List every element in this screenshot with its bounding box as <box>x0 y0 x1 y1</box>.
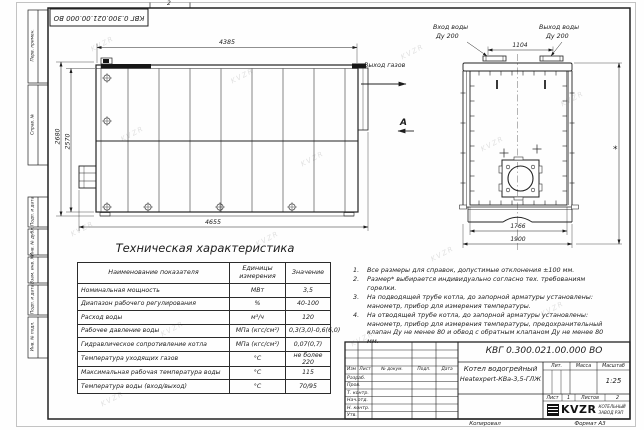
note-item: 2. Размер* выбирается индивидуально согл… <box>353 275 613 292</box>
tb-row-tkontr: Т. контр. <box>347 391 369 396</box>
spec-cell-unit: °С <box>230 380 286 394</box>
tb-header-list: Лист <box>358 368 372 373</box>
dim-2570: 2570 <box>66 113 73 169</box>
note-number: 4. <box>353 311 367 345</box>
spec-cell-name: Номинальная мощность <box>78 284 230 298</box>
tb-row-nkontr: Н. контр. <box>347 406 369 411</box>
spec-cell-unit: м³/ч <box>230 311 286 325</box>
kvzr-logo-caption: КОТЕЛЬНЫЙ ЗАВОД РЭП <box>598 404 625 415</box>
dim-4385: 4385 <box>182 40 272 47</box>
top-sheet-marker: 2 <box>167 1 171 8</box>
lit-label: Лит. <box>543 364 570 369</box>
format-label: Формат А3 <box>565 421 615 427</box>
note-item: 1. Все размеры для справок, допустимые о… <box>353 266 613 274</box>
spec-cell-unit: % <box>230 297 286 311</box>
end-view-linework <box>460 42 623 252</box>
tb-header-podp: Подп. <box>412 368 436 373</box>
spec-row: Диапазон рабочего регулирования % 40-100 <box>78 297 331 311</box>
drawing-sheet: KVZR KVZR KVZR KVZR KVZR KVZR KVZR KVZR … <box>0 0 644 430</box>
margin-label-perv-primen: Перв. примен. <box>32 10 37 80</box>
mass-label: Масса <box>570 364 597 369</box>
tb-header-izm: Изм <box>345 368 358 373</box>
spec-cell-value: 70/95 <box>286 380 331 394</box>
dim-1900: 1900 <box>486 237 550 244</box>
spec-cell-value: 0,3(3,0)-0,6(6,0) <box>286 324 331 338</box>
view-a-label: А <box>400 119 407 129</box>
spec-cell-unit: МВт <box>230 284 286 298</box>
product-name-line2: Heatexpert-КВа-3,5-ГЛЖ <box>459 376 542 383</box>
dim-2680: 2680 <box>56 108 63 164</box>
scale-value: 1:25 <box>597 378 630 386</box>
spec-table-title: Техническая характеристика <box>105 242 305 255</box>
spec-row: Расход воды м³/ч 120 <box>78 311 331 325</box>
kvzr-logo-text: KVZR <box>561 403 596 416</box>
note-number: 1. <box>353 266 367 274</box>
spec-row: Максимальная рабочая температура воды °С… <box>78 366 331 380</box>
gas-outlet-label: Выход газов <box>364 63 405 70</box>
spec-table: Наименование показателя Единицы измерени… <box>77 262 331 394</box>
sheet-label: Лист <box>543 396 562 401</box>
spec-header-units: Единицы измерения <box>230 263 286 284</box>
spec-header-name: Наименование показателя <box>78 263 230 284</box>
note-text: На отводящей трубе котла, до запорной ар… <box>367 311 613 345</box>
spec-cell-value: 120 <box>286 311 331 325</box>
note-item: 4. На отводящей трубе котла, до запорной… <box>353 311 613 345</box>
margin-label-inv-podl: Инв. № подл. <box>32 301 37 371</box>
spec-cell-name: Диапазон рабочего регулирования <box>78 297 230 311</box>
spec-cell-name: Температура уходящих газов <box>78 351 230 366</box>
note-number: 3. <box>353 293 367 310</box>
top-left-stamp: КВГ 0.300.021.00.000 ВО <box>50 10 148 25</box>
spec-row: Температура воды (вход/выход) °С 70/95 <box>78 380 331 394</box>
sheets-label: Листов <box>575 396 605 401</box>
spec-cell-unit: °С <box>230 366 286 380</box>
sheet-value: 1 <box>562 396 575 401</box>
spec-row: Номинальная мощность МВт 3,5 <box>78 284 331 298</box>
water-outlet-label: Выход воды <box>539 25 579 32</box>
sheets-value: 2 <box>605 396 630 401</box>
tb-row-prov: Пров. <box>347 383 361 388</box>
spec-cell-name: Максимальная рабочая температура воды <box>78 366 230 380</box>
dim-1104: 1104 <box>490 43 550 50</box>
side-view-linework <box>56 44 414 232</box>
spec-cell-name: Температура воды (вход/выход) <box>78 380 230 394</box>
title-block-doc-number: КВГ 0.300.021.00.000 ВО <box>459 347 629 357</box>
copied-label: Копировал <box>455 421 515 427</box>
spec-cell-unit: МПа (кгс/см²) <box>230 324 286 338</box>
note-number: 2. <box>353 275 367 292</box>
note-text: Все размеры для справок, допустимые откл… <box>367 266 574 274</box>
spec-cell-value: не более 220 <box>286 351 331 366</box>
tb-row-nachotd: Нач.отд. <box>347 398 368 403</box>
spec-row: Температура уходящих газов °С не более 2… <box>78 351 331 366</box>
tb-header-docnum: № докум. <box>372 368 412 373</box>
spec-cell-name: Рабочее давление воды <box>78 324 230 338</box>
water-inlet-label: Вход воды <box>433 25 468 32</box>
dim-4655: 4655 <box>168 220 258 227</box>
kvzr-logo: KVZR КОТЕЛЬНЫЙ ЗАВОД РЭП <box>547 402 626 417</box>
tb-row-utv: Утв. <box>347 413 357 418</box>
note-item: 3. На подводящей трубе котла, до запорно… <box>353 293 613 310</box>
dim-asterisk: * <box>613 146 618 156</box>
spec-row: Рабочее давление воды МПа (кгс/см²) 0,3(… <box>78 324 331 338</box>
spec-cell-unit: °С <box>230 351 286 366</box>
scale-label: Масштаб <box>597 364 630 369</box>
water-outlet-dn: Ду 200 <box>546 34 569 41</box>
note-text: На подводящей трубе котла, до запорной а… <box>367 293 613 310</box>
spec-header-value: Значение <box>286 263 331 284</box>
spec-cell-value: 0,07(0,7) <box>286 338 331 352</box>
dim-1766: 1766 <box>488 224 548 231</box>
spec-cell-name: Гидравлическое сопротивление котла <box>78 338 230 352</box>
water-inlet-dn: Ду 200 <box>436 34 459 41</box>
note-text: Размер* выбирается индивидуально согласн… <box>367 275 613 292</box>
spec-cell-name: Расход воды <box>78 311 230 325</box>
spec-cell-unit: МПа (кгс/см²) <box>230 338 286 352</box>
spec-cell-value: 115 <box>286 366 331 380</box>
spec-cell-value: 40-100 <box>286 297 331 311</box>
tb-header-data: Дата <box>436 368 458 373</box>
spec-cell-value: 3,5 <box>286 284 331 298</box>
spec-row: Гидравлическое сопротивление котла МПа (… <box>78 338 331 352</box>
notes-list: 1. Все размеры для справок, допустимые о… <box>353 266 613 346</box>
product-name-line1: Котел водогрейный <box>459 366 542 374</box>
kvzr-caption-line2: ЗАВОД РЭП <box>598 410 625 415</box>
tb-row-razrab: Разраб. <box>347 376 365 381</box>
margin-label-sprav-no: Справ. № <box>32 89 37 159</box>
kvzr-logo-icon <box>547 404 559 416</box>
